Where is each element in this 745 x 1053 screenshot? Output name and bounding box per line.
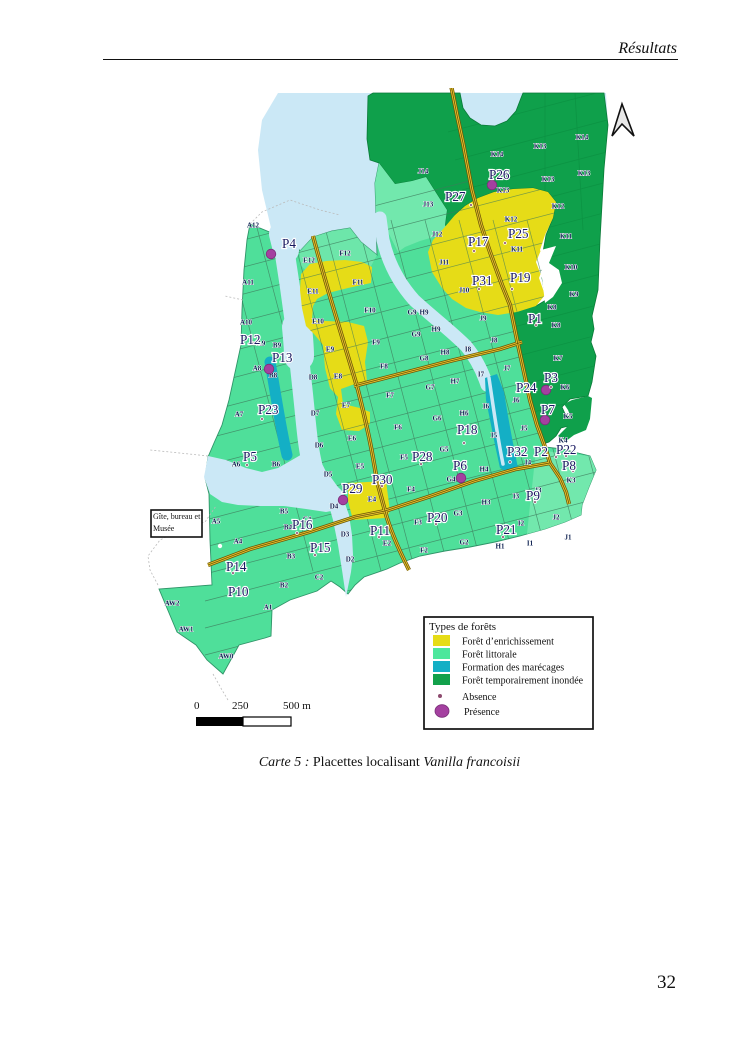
- svg-text:K11: K11: [511, 246, 524, 254]
- svg-text:AW1: AW1: [179, 626, 194, 634]
- svg-text:Forêt temporairement inondée: Forêt temporairement inondée: [462, 676, 584, 687]
- svg-text:P28: P28: [412, 449, 433, 464]
- svg-text:P12: P12: [240, 332, 261, 347]
- svg-text:P7: P7: [541, 402, 555, 417]
- svg-text:B5: B5: [280, 508, 289, 516]
- svg-text:A12: A12: [247, 222, 260, 230]
- svg-text:I4: I4: [525, 459, 532, 467]
- svg-text:A6: A6: [232, 461, 241, 469]
- svg-text:K14: K14: [491, 151, 504, 159]
- svg-text:P18: P18: [457, 422, 478, 437]
- svg-text:K12: K12: [505, 216, 518, 224]
- svg-text:J13: J13: [423, 201, 434, 209]
- svg-text:P6: P6: [453, 458, 467, 473]
- svg-text:E10: E10: [312, 318, 324, 326]
- svg-text:E5: E5: [356, 463, 365, 471]
- svg-text:J10: J10: [459, 287, 470, 295]
- svg-text:D4: D4: [330, 503, 339, 511]
- svg-text:A8: A8: [253, 365, 262, 373]
- svg-text:P14: P14: [226, 559, 247, 574]
- svg-text:H9: H9: [432, 326, 441, 334]
- svg-text:F5: F5: [400, 454, 408, 462]
- svg-text:F12: F12: [339, 250, 351, 258]
- svg-text:E4: E4: [368, 496, 377, 504]
- svg-text:F6: F6: [394, 424, 402, 432]
- svg-text:B6: B6: [272, 461, 281, 469]
- svg-text:P1: P1: [528, 311, 542, 326]
- svg-text:J2: J2: [553, 514, 561, 522]
- svg-text:P13: P13: [272, 350, 293, 365]
- svg-text:A1: A1: [264, 604, 273, 612]
- svg-text:H8: H8: [441, 349, 450, 357]
- svg-text:K8: K8: [548, 304, 557, 312]
- svg-text:H6: H6: [460, 410, 469, 418]
- svg-text:AW0: AW0: [219, 653, 234, 661]
- svg-text:K3: K3: [567, 477, 576, 485]
- svg-text:P11: P11: [370, 523, 390, 538]
- svg-text:P16: P16: [292, 517, 313, 532]
- svg-text:A7: A7: [235, 411, 244, 419]
- svg-text:P29: P29: [342, 481, 363, 496]
- svg-text:P32: P32: [507, 444, 528, 459]
- svg-text:F10: F10: [364, 307, 376, 315]
- svg-text:K13: K13: [534, 143, 547, 151]
- svg-text:G8: G8: [420, 355, 429, 363]
- svg-text:P2: P2: [534, 444, 548, 459]
- svg-text:P27: P27: [445, 189, 466, 204]
- svg-text:K7: K7: [554, 355, 563, 363]
- svg-text:Présence: Présence: [464, 707, 500, 718]
- svg-text:K14: K14: [576, 134, 589, 142]
- svg-text:P20: P20: [427, 510, 448, 525]
- svg-text:J1: J1: [565, 534, 573, 542]
- svg-text:P22: P22: [556, 442, 577, 457]
- svg-text:Forêt littorale: Forêt littorale: [462, 650, 517, 661]
- svg-text:P25: P25: [508, 226, 529, 241]
- svg-text:E9: E9: [326, 346, 335, 354]
- svg-text:F3: F3: [414, 519, 422, 527]
- svg-text:D6: D6: [315, 442, 324, 450]
- svg-text:C2: C2: [315, 574, 324, 582]
- svg-text:E6: E6: [348, 435, 357, 443]
- svg-text:H4: H4: [480, 466, 489, 474]
- svg-text:K6: K6: [561, 384, 570, 392]
- svg-text:P15: P15: [310, 540, 331, 555]
- svg-text:D3: D3: [341, 531, 350, 539]
- svg-text:Musée: Musée: [153, 524, 175, 533]
- svg-text:E7: E7: [342, 402, 351, 410]
- svg-text:Gîte, bureau et: Gîte, bureau et: [153, 512, 201, 521]
- svg-text:F2: F2: [420, 547, 428, 555]
- svg-text:J5: J5: [521, 425, 529, 433]
- svg-text:K8: K8: [552, 322, 561, 330]
- svg-text:I2: I2: [518, 520, 525, 528]
- svg-text:B3: B3: [287, 553, 296, 561]
- svg-text:Forêt d’enrichissement: Forêt d’enrichissement: [462, 637, 554, 648]
- svg-text:K13: K13: [542, 176, 555, 184]
- svg-text:P30: P30: [372, 472, 393, 487]
- svg-text:G4: G4: [447, 476, 456, 484]
- svg-text:I7: I7: [478, 371, 485, 379]
- svg-text:B2: B2: [280, 582, 289, 590]
- svg-text:G9: G9: [408, 309, 417, 317]
- svg-text:G9: G9: [412, 331, 421, 339]
- svg-text:P8: P8: [562, 458, 576, 473]
- svg-text:D7: D7: [311, 410, 320, 418]
- svg-text:I6: I6: [483, 403, 490, 411]
- svg-text:I1: I1: [527, 540, 534, 548]
- svg-text:K13: K13: [497, 187, 510, 195]
- svg-text:B9: B9: [273, 342, 282, 350]
- svg-text:J9: J9: [480, 315, 488, 323]
- svg-text:A10: A10: [240, 319, 253, 327]
- svg-text:F7: F7: [386, 392, 394, 400]
- svg-text:G7: G7: [426, 384, 435, 392]
- svg-text:J7: J7: [504, 365, 512, 373]
- svg-text:K5: K5: [564, 413, 573, 421]
- svg-text:K11: K11: [560, 233, 573, 241]
- svg-text:Types de forêts: Types de forêts: [429, 621, 496, 633]
- svg-text:H1: H1: [496, 543, 505, 551]
- svg-text:A4: A4: [234, 538, 243, 546]
- svg-text:Absence: Absence: [462, 692, 497, 703]
- svg-text:0: 0: [194, 700, 200, 712]
- svg-text:P3: P3: [544, 370, 558, 385]
- svg-text:I3: I3: [513, 493, 520, 501]
- svg-text:AW2: AW2: [165, 600, 180, 608]
- svg-text:P4: P4: [282, 236, 296, 251]
- svg-text:E8: E8: [334, 373, 343, 381]
- svg-text:J6: J6: [513, 397, 521, 405]
- svg-text:J14: J14: [418, 168, 429, 176]
- svg-text:K9: K9: [570, 291, 579, 299]
- svg-text:K12: K12: [552, 203, 565, 211]
- svg-text:P21: P21: [496, 522, 517, 537]
- svg-text:D8: D8: [309, 374, 318, 382]
- svg-text:F11: F11: [353, 279, 364, 287]
- svg-text:P23: P23: [258, 402, 279, 417]
- svg-text:F8: F8: [380, 363, 388, 371]
- svg-text:E12: E12: [303, 257, 315, 265]
- svg-text:A5: A5: [212, 518, 221, 526]
- svg-text:K13: K13: [578, 170, 591, 178]
- svg-text:J12: J12: [432, 231, 443, 239]
- svg-text:G2: G2: [460, 539, 469, 547]
- svg-text:Formation des marécages: Formation des marécages: [462, 663, 564, 674]
- svg-text:P24: P24: [516, 380, 537, 395]
- svg-text:250: 250: [232, 700, 249, 712]
- svg-text:I8: I8: [465, 346, 472, 354]
- svg-text:F4: F4: [407, 486, 415, 494]
- svg-text:H7: H7: [451, 378, 460, 386]
- svg-text:G5: G5: [440, 446, 449, 454]
- svg-text:E2: E2: [383, 540, 392, 548]
- svg-text:D2: D2: [346, 556, 355, 564]
- svg-text:P5: P5: [243, 449, 257, 464]
- svg-text:P9: P9: [526, 488, 540, 503]
- svg-text:J11: J11: [439, 259, 450, 267]
- svg-text:F9: F9: [372, 339, 380, 347]
- svg-text:P31: P31: [472, 273, 493, 288]
- svg-text:D5: D5: [324, 471, 333, 479]
- svg-text:P26: P26: [489, 167, 510, 182]
- svg-text:H9: H9: [420, 309, 429, 317]
- svg-text:P17: P17: [468, 234, 489, 249]
- svg-text:J8: J8: [491, 337, 499, 345]
- svg-text:P10: P10: [228, 584, 249, 599]
- svg-text:H3: H3: [482, 499, 491, 507]
- svg-text:A11: A11: [242, 279, 254, 287]
- svg-text:G6: G6: [433, 415, 442, 423]
- svg-text:K10: K10: [565, 264, 578, 272]
- svg-text:E11: E11: [307, 288, 319, 296]
- svg-text:P19: P19: [510, 270, 531, 285]
- svg-text:500 m: 500 m: [283, 700, 311, 712]
- svg-text:I5: I5: [491, 432, 498, 440]
- svg-text:G3: G3: [454, 510, 463, 518]
